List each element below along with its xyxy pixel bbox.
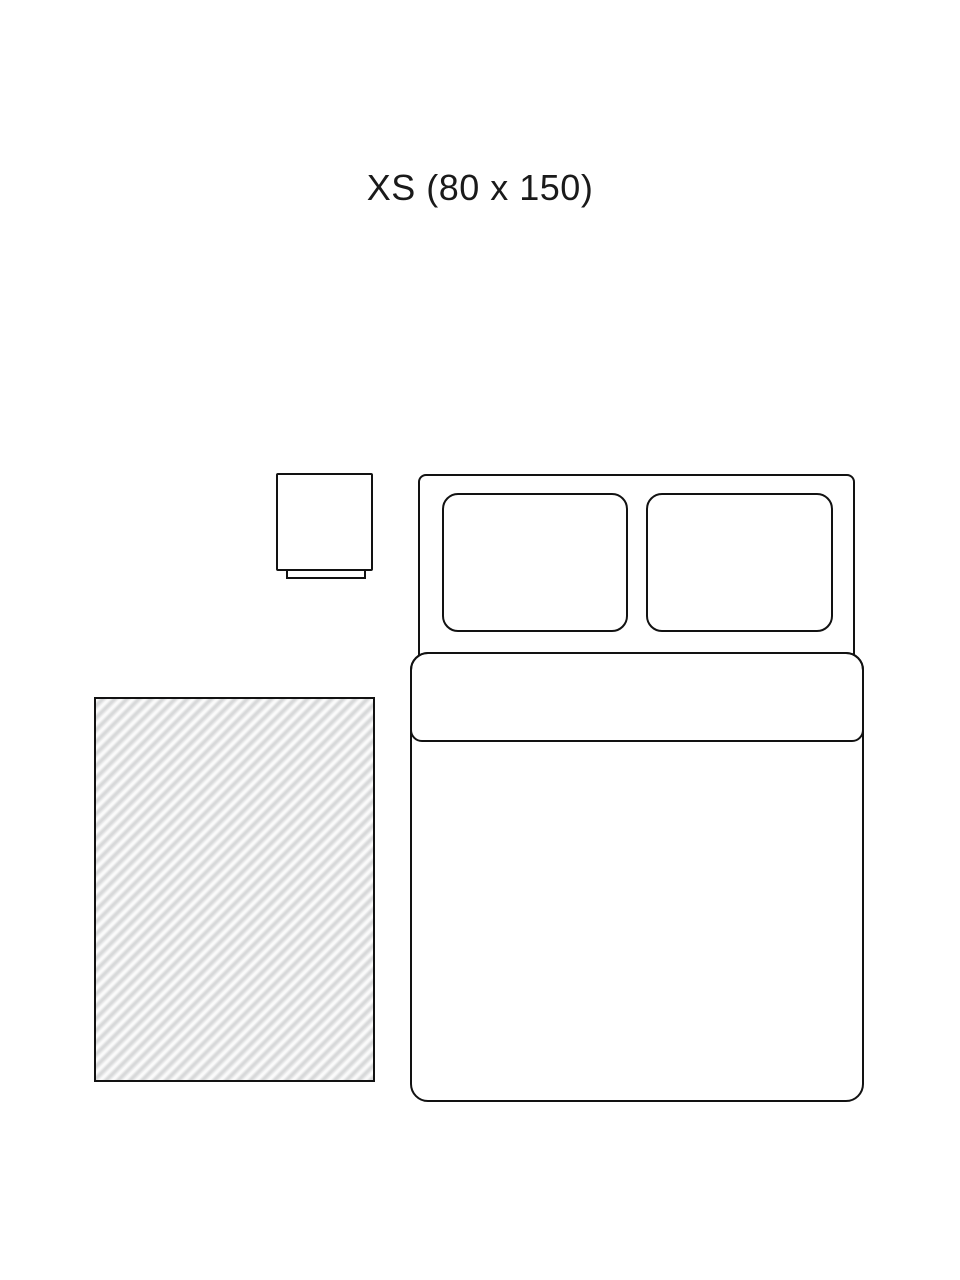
pillow-left — [442, 493, 628, 632]
duvet-fold-line — [410, 652, 864, 742]
nightstand-surface — [276, 473, 373, 571]
size-guide-canvas: XS (80 x 150) — [0, 0, 960, 1280]
pillow-right — [646, 493, 833, 632]
size-label: XS (80 x 150) — [0, 168, 960, 208]
rug-xs-hatched — [94, 697, 375, 1082]
